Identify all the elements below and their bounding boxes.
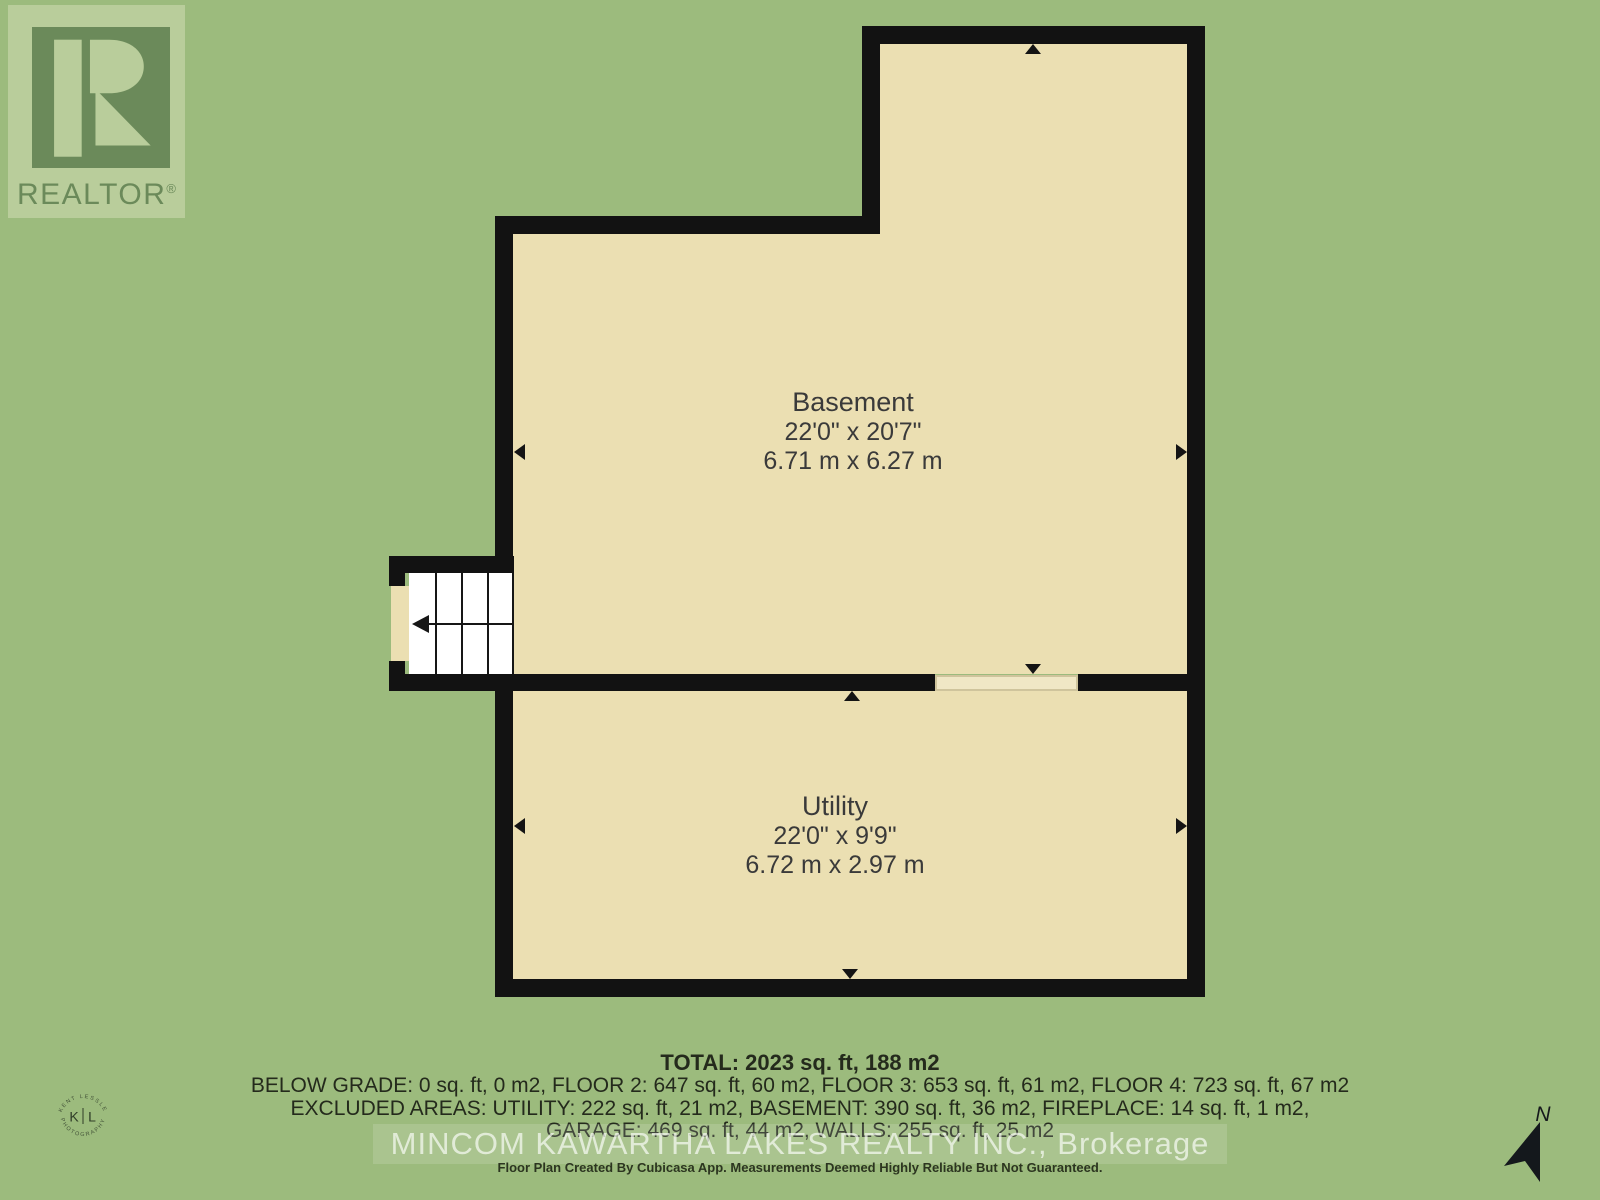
doorway-opening: [936, 676, 1077, 690]
wall-stairs-top: [389, 556, 514, 573]
room-name: Utility: [685, 791, 985, 821]
wall-divider-right: [1078, 674, 1187, 691]
stair-landing-strip: [391, 586, 409, 661]
disclaimer-text: Floor Plan Created By Cubicasa App. Meas…: [0, 1160, 1600, 1175]
excluded-areas-line-1: EXCLUDED AREAS: UTILITY: 222 sq. ft, 21 …: [0, 1098, 1600, 1121]
wall-stairs-bottom: [389, 674, 514, 691]
floorplan-page: { "branding": { "realtor_text": "REALTOR…: [0, 0, 1600, 1200]
below-grade-line: BELOW GRADE: 0 sq. ft, 0 m2, FLOOR 2: 64…: [0, 1075, 1600, 1098]
room-dimensions-imperial: 22'0" x 20'7": [703, 418, 1003, 446]
wall-divider-left: [495, 674, 935, 691]
room-label-utility: Utility 22'0" x 9'9" 6.72 m x 2.97 m: [685, 791, 985, 879]
badge-initial-l: L: [88, 1109, 96, 1125]
wall-right: [1187, 26, 1205, 997]
wall-top-left-section: [495, 216, 880, 234]
wall-left-lower: [495, 674, 513, 997]
wall-stairs-stub-bottom: [389, 661, 405, 691]
stairs: [409, 573, 514, 674]
room-name: Basement: [703, 387, 1003, 417]
badge-initial-k: K: [69, 1109, 79, 1125]
wall-step-vertical: [862, 26, 880, 234]
excluded-areas-line-2: GARAGE: 469 sq. ft, 44 m2, WALLS: 255 sq…: [0, 1120, 1600, 1143]
room-dimensions-metric: 6.72 m x 2.97 m: [685, 851, 985, 879]
area-summary: TOTAL: 2023 sq. ft, 188 m2 BELOW GRADE: …: [0, 1051, 1600, 1143]
wall-stairs-stub-top: [389, 556, 405, 586]
floorplan-drawing: [0, 0, 1600, 1200]
total-area-line: TOTAL: 2023 sq. ft, 188 m2: [0, 1051, 1600, 1075]
wall-bottom: [495, 979, 1205, 997]
north-label: N: [1528, 1103, 1558, 1127]
room-label-basement: Basement 22'0" x 20'7" 6.71 m x 6.27 m: [703, 387, 1003, 475]
wall-left-upper: [495, 216, 513, 573]
wall-top-right-section: [862, 26, 1205, 44]
room-dimensions-imperial: 22'0" x 9'9": [685, 822, 985, 850]
basement-floor-upper: [880, 44, 1187, 674]
room-dimensions-metric: 6.71 m x 6.27 m: [703, 447, 1003, 475]
photographer-badge: KENT LESSLE PHOTOGRAPHY K L: [45, 1078, 121, 1154]
